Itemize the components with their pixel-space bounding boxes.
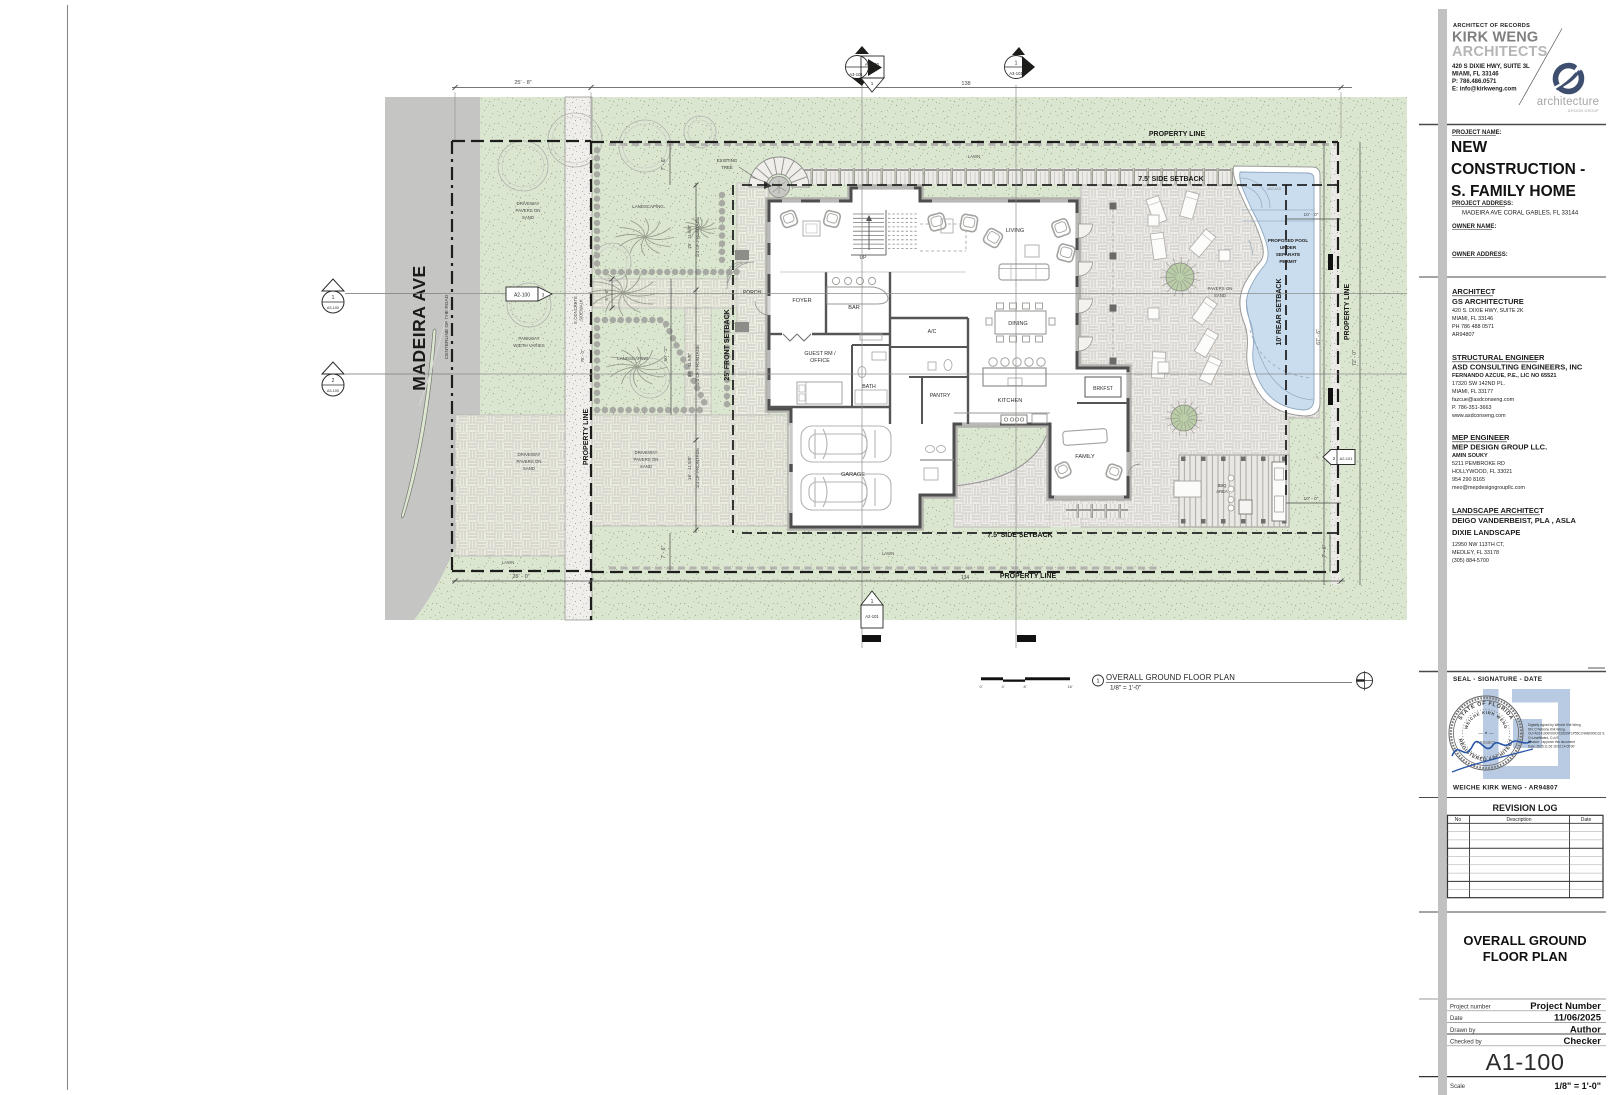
svg-text:FOYER: FOYER: [792, 298, 811, 304]
svg-text:PROPERTY LINE: PROPERTY LINE: [1344, 284, 1351, 341]
svg-text:Date: 2025.11.06 16:52:14-05'0: Date: 2025.11.06 16:52:14-05'00': [1528, 745, 1575, 749]
svg-text:A3-100: A3-100: [327, 389, 339, 393]
svg-text:A2-100: A2-100: [514, 293, 530, 299]
svg-text:FAMILY: FAMILY: [1075, 454, 1095, 460]
svg-text:17320 SW 142ND PL.: 17320 SW 142ND PL.: [1452, 381, 1505, 387]
svg-text:PORCH: PORCH: [743, 290, 761, 296]
svg-text:134: 134: [961, 575, 970, 581]
svg-text:EXISTING: EXISTING: [717, 158, 738, 163]
svg-text:8': 8': [1024, 684, 1027, 689]
svg-text:UNDER: UNDER: [1280, 245, 1297, 250]
svg-text:7.5' SIDE SETBACK: 7.5' SIDE SETBACK: [1138, 176, 1203, 183]
svg-text:NEW: NEW: [1451, 139, 1488, 156]
svg-text:19' - 11 5/8": 19' - 11 5/8": [687, 225, 692, 249]
svg-text:PROPOSED POOL: PROPOSED POOL: [1268, 238, 1309, 243]
svg-text:A3-101: A3-101: [1009, 71, 1023, 76]
svg-text:Checked by: Checked by: [1450, 1040, 1482, 1046]
svg-text:DINING: DINING: [1008, 321, 1028, 327]
svg-text:1: 1: [1015, 61, 1018, 67]
svg-text:16': 16': [1067, 684, 1072, 689]
svg-text:5' - 6": 5' - 6": [604, 289, 609, 301]
svg-text:1: 1: [871, 599, 874, 605]
svg-text:DRIVEWAY: DRIVEWAY: [518, 452, 541, 457]
svg-text:12950 NW 113TH CT,: 12950 NW 113TH CT,: [1452, 542, 1505, 548]
svg-text:PROPERTY LINE: PROPERTY LINE: [1149, 131, 1206, 138]
svg-text:Drawn by: Drawn by: [1450, 1028, 1475, 1034]
svg-text:A1-100: A1-100: [1486, 1049, 1565, 1075]
svg-text:MIAMI, FL 33146: MIAMI, FL 33146: [1452, 316, 1493, 322]
svg-text:3: 3: [542, 293, 545, 298]
svg-text:1: 1: [1096, 679, 1099, 685]
svg-text:PAVERS ON: PAVERS ON: [634, 457, 659, 462]
svg-text:E: info@kirkweng.com: E: info@kirkweng.com: [1452, 87, 1517, 93]
svg-text:OVERALL GROUND: OVERALL GROUND: [1463, 933, 1586, 948]
svg-text:OFFICE: OFFICE: [810, 358, 830, 364]
svg-text:WEICHE KIRK WENG - AR94807: WEICHE KIRK WENG - AR94807: [1453, 785, 1558, 792]
svg-text:67' - 6": 67' - 6": [1316, 329, 1322, 345]
svg-text:ASD CONSULTING ENGINEERS, INC: ASD CONSULTING ENGINEERS, INC: [1452, 363, 1583, 372]
svg-text:BBQ: BBQ: [1218, 483, 1228, 488]
svg-text:DEIGO VANDERBEIST, PLA , ASLA: DEIGO VANDERBEIST, PLA , ASLA: [1452, 516, 1576, 525]
svg-text:SAND: SAND: [522, 215, 534, 220]
svg-text:FLOOR PLAN: FLOOR PLAN: [1483, 949, 1568, 964]
svg-text:LANDSCAPE ARCHITECT: LANDSCAPE ARCHITECT: [1452, 506, 1544, 515]
svg-text:BATH: BATH: [862, 384, 876, 390]
svg-text:MEDLEY, FL 33178: MEDLEY, FL 33178: [1452, 550, 1499, 556]
svg-text:PROPERTY LINE: PROPERTY LINE: [1000, 573, 1057, 580]
svg-text:1/3 OF FRONTAGE: 1/3 OF FRONTAGE: [695, 345, 700, 386]
svg-text:LIVING: LIVING: [1006, 228, 1024, 234]
svg-text:GS ARCHITECTURE: GS ARCHITECTURE: [1452, 297, 1524, 306]
svg-text:1/8" = 1'-0": 1/8" = 1'-0": [1555, 1081, 1601, 1091]
svg-text:KITCHEN: KITCHEN: [998, 398, 1023, 404]
svg-text:1: 1: [871, 81, 874, 86]
svg-text:AR94807: AR94807: [1452, 332, 1474, 338]
svg-text:architecture: architecture: [1537, 96, 1599, 108]
svg-text:MEP DESIGN GROUP LLC.: MEP DESIGN GROUP LLC.: [1452, 443, 1547, 452]
svg-text:SEPARATE: SEPARATE: [1276, 252, 1300, 257]
svg-text:HOLLYWOOD, FL 33021: HOLLYWOOD, FL 33021: [1452, 469, 1512, 475]
svg-text:1/8" = 1'-0": 1/8" = 1'-0": [1110, 685, 1141, 692]
svg-text:72' - 0": 72' - 0": [1352, 350, 1358, 366]
svg-text:OWNER NAME:: OWNER NAME:: [1452, 224, 1496, 230]
svg-text:REVISION LOG: REVISION LOG: [1492, 803, 1557, 813]
svg-text:MEP ENGINEER: MEP ENGINEER: [1452, 433, 1510, 442]
svg-text:OVERALL GROUND FLOOR PLAN: OVERALL GROUND FLOOR PLAN: [1106, 673, 1235, 682]
svg-text:MADEIRA AVE: MADEIRA AVE: [409, 265, 429, 390]
svg-text:5211 PEMBROKE RD: 5211 PEMBROKE RD: [1452, 461, 1505, 467]
svg-text:75' - 0": 75' - 0": [580, 349, 585, 363]
svg-text:PANTRY: PANTRY: [930, 393, 951, 399]
svg-text:PAVERS ON: PAVERS ON: [516, 208, 541, 213]
svg-text:2: 2: [1333, 456, 1336, 461]
svg-text:420 S. DIXIE HWY, SUITE 2K: 420 S. DIXIE HWY, SUITE 2K: [1452, 308, 1524, 314]
svg-text:LANDSCAPING: LANDSCAPING: [632, 204, 664, 209]
svg-text:BRKFST: BRKFST: [1093, 386, 1113, 392]
svg-text:SAND: SAND: [1214, 293, 1226, 298]
svg-text:Scale: Scale: [1450, 1084, 1466, 1090]
svg-text:25' - 8": 25' - 8": [514, 80, 531, 86]
svg-text:UP: UP: [860, 255, 868, 261]
svg-text:16' - 11 5/8": 16' - 11 5/8": [687, 456, 692, 480]
svg-text:954 290 8165: 954 290 8165: [1452, 477, 1485, 483]
svg-text:A3-101: A3-101: [849, 72, 863, 77]
svg-text:ARCHITECT: ARCHITECT: [1452, 287, 1496, 296]
svg-text:AREA: AREA: [1216, 489, 1228, 494]
svg-text:LAWN: LAWN: [968, 154, 981, 159]
svg-text:4': 4': [1002, 684, 1005, 689]
svg-text:PERMIT: PERMIT: [1279, 259, 1297, 264]
svg-text:Author: Author: [1570, 1024, 1601, 1035]
svg-text:PAVERS ON: PAVERS ON: [517, 459, 542, 464]
svg-text:BAR: BAR: [848, 305, 860, 311]
svg-text:GARAGE: GARAGE: [841, 472, 865, 478]
svg-text:SEAL - SIGNATURE - DATE: SEAL - SIGNATURE - DATE: [1453, 676, 1543, 683]
svg-text:LAWN: LAWN: [502, 560, 515, 565]
svg-text:LANDSCAPING: LANDSCAPING: [617, 356, 649, 361]
svg-text:1/3 OF FRONTAGE: 1/3 OF FRONTAGE: [695, 217, 700, 258]
svg-text:138: 138: [961, 81, 970, 87]
svg-text:— ✶ —: — ✶ —: [1478, 731, 1494, 736]
svg-text:DESIGN GROUP: DESIGN GROUP: [1568, 109, 1600, 113]
svg-text:A3-100: A3-100: [327, 306, 339, 310]
svg-text:DRIVEWAY: DRIVEWAY: [635, 450, 658, 455]
svg-text:10' - 0": 10' - 0": [1304, 212, 1319, 218]
svg-text:TREE: TREE: [721, 165, 733, 170]
svg-text:meo@mepdesigngroupllc.com: meo@mepdesigngroupllc.com: [1452, 485, 1525, 491]
svg-text:No: No: [1455, 817, 1462, 823]
svg-text:7' - 6": 7' - 6": [661, 157, 667, 170]
svg-text:7' - 6": 7' - 6": [1322, 544, 1328, 557]
svg-text:PAVERS ON: PAVERS ON: [1208, 286, 1233, 291]
svg-text:PROPERTY LINE: PROPERTY LINE: [583, 409, 590, 466]
svg-text:2: 2: [332, 378, 335, 384]
svg-text:Date: Date: [1450, 1016, 1463, 1022]
svg-text:ARCHITECT OF RECORDS: ARCHITECT OF RECORDS: [1453, 23, 1530, 29]
svg-text:A/C: A/C: [928, 329, 937, 335]
svg-text:Checker: Checker: [1564, 1036, 1602, 1047]
svg-text:A2-101: A2-101: [865, 614, 879, 619]
svg-text:SIDEWALK: SIDEWALK: [579, 299, 584, 321]
svg-text:1/3 OF FRONTAGE: 1/3 OF FRONTAGE: [695, 448, 700, 489]
svg-text:PROJECT ADDRESS:: PROJECT ADDRESS:: [1452, 201, 1513, 207]
svg-text:1: 1: [332, 295, 335, 301]
svg-text:Description: Description: [1506, 817, 1531, 823]
svg-text:DIXIE LANDSCAPE: DIXIE LANDSCAPE: [1452, 528, 1520, 537]
svg-text:JACUZZI: JACUZZI: [1267, 187, 1282, 191]
svg-text:Project Number: Project Number: [1530, 1001, 1601, 1012]
svg-text:MIAMI, FL 33146: MIAMI, FL 33146: [1452, 72, 1499, 78]
svg-text:(305) 884-5700: (305) 884-5700: [1452, 558, 1489, 564]
svg-text:A2-101: A2-101: [1340, 456, 1354, 461]
svg-text:PH 786 488 0571: PH 786 488 0571: [1452, 324, 1494, 330]
svg-text:10' REAR SETBACK: 10' REAR SETBACK: [1276, 278, 1283, 345]
svg-text:CENTERLINE OF THE ROAD: CENTERLINE OF THE ROAD: [444, 294, 450, 359]
svg-text:A2-100: A2-100: [865, 62, 880, 67]
svg-text:MIAMI, FL 33177: MIAMI, FL 33177: [1452, 389, 1493, 395]
svg-text:36' - 11 5/8": 36' - 11 5/8": [687, 353, 692, 377]
svg-text:ARCHITECTS: ARCHITECTS: [1452, 44, 1548, 60]
svg-text:www.asdconseng.com: www.asdconseng.com: [1451, 413, 1506, 419]
svg-text:11/06/2025: 11/06/2025: [1554, 1013, 1602, 1024]
svg-text:GUEST RM /: GUEST RM /: [804, 351, 836, 357]
svg-text:10' - 0": 10' - 0": [1304, 496, 1319, 502]
svg-text:STRUCTURAL ENGINEER: STRUCTURAL ENGINEER: [1452, 353, 1545, 362]
svg-text:LAWN: LAWN: [882, 551, 895, 556]
svg-text:Project number: Project number: [1450, 1005, 1491, 1011]
svg-text:FERNANDO AZCUE, P.E., LIC NO 6: FERNANDO AZCUE, P.E., LIC NO 65521: [1452, 373, 1556, 379]
svg-text:0': 0': [980, 684, 983, 689]
svg-text:60' - 2": 60' - 2": [663, 346, 669, 361]
svg-text:Date: Date: [1581, 817, 1592, 823]
svg-text:fazcue@asdconseng.com: fazcue@asdconseng.com: [1452, 397, 1515, 403]
svg-text:SAND: SAND: [523, 466, 535, 471]
svg-text:PARKWAY: PARKWAY: [518, 336, 539, 341]
svg-text:DRIVEWAY: DRIVEWAY: [517, 201, 540, 206]
svg-text:PROJECT NAME:: PROJECT NAME:: [1452, 130, 1502, 136]
svg-text:S. FAMILY HOME: S. FAMILY HOME: [1451, 183, 1576, 200]
svg-text:P. 786-351-3663: P. 786-351-3663: [1452, 405, 1491, 411]
svg-text:25' FRONT SETBACK: 25' FRONT SETBACK: [724, 309, 731, 380]
svg-text:AMIN SOUKY: AMIN SOUKY: [1452, 453, 1488, 459]
svg-text:P: 786.486.0571: P: 786.486.0571: [1452, 79, 1497, 85]
svg-text:MADEIRA AVE CORAL GABLES, FL 3: MADEIRA AVE CORAL GABLES, FL 33144: [1462, 211, 1579, 217]
svg-text:7' - 6": 7' - 6": [661, 545, 667, 558]
svg-text:WIDTH VARIES: WIDTH VARIES: [513, 343, 544, 348]
svg-text:26' - 0": 26' - 0": [512, 574, 529, 580]
svg-text:OWNER ADDRESS:: OWNER ADDRESS:: [1452, 252, 1508, 258]
svg-text:5' CONCRETE: 5' CONCRETE: [573, 296, 578, 324]
svg-text:7.5' SIDE SETBACK: 7.5' SIDE SETBACK: [987, 532, 1052, 539]
svg-text:420 S DIXIE HWY, SUITE 3L: 420 S DIXIE HWY, SUITE 3L: [1452, 64, 1530, 70]
svg-text:CONSTRUCTION -: CONSTRUCTION -: [1451, 161, 1585, 178]
svg-text:SAND: SAND: [640, 464, 652, 469]
